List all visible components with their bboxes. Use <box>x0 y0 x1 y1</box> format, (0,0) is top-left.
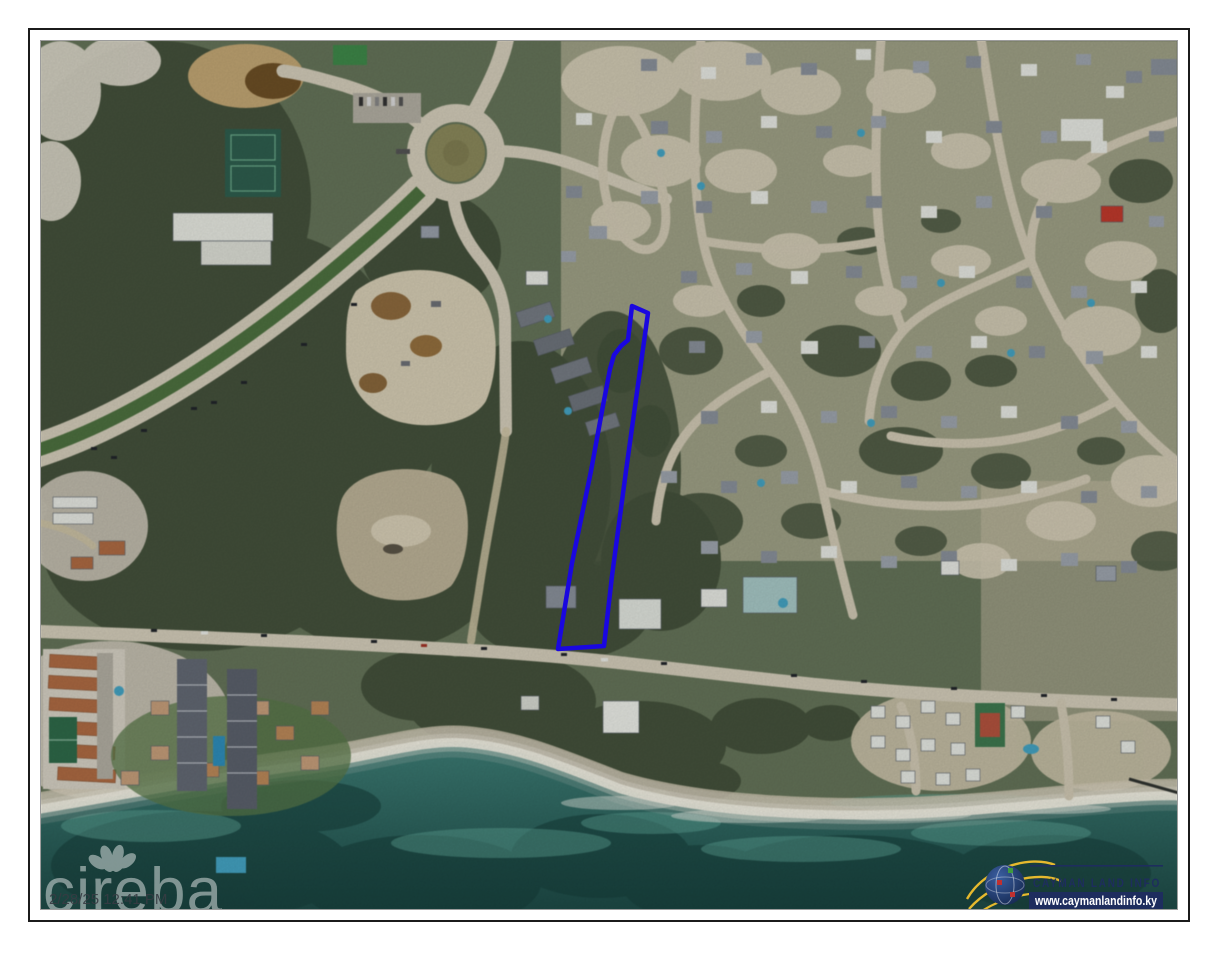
logo-rule <box>1030 865 1163 867</box>
logo-url-text: www.caymanlandinfo.ky <box>1034 894 1157 908</box>
logo-name-text: CAYMAN LAND INFO <box>1033 878 1161 890</box>
timestamp-text: 2/28/25 12:41 PM <box>49 891 167 908</box>
satellite-imagery <box>41 41 1177 909</box>
photo-grain <box>41 41 1177 909</box>
photo-outer-frame: cireba 2/28/25 12:41 PM CAYMAN LAND INFO… <box>28 28 1190 922</box>
photo-inner-frame: cireba 2/28/25 12:41 PM CAYMAN LAND INFO… <box>40 40 1178 910</box>
aerial-map: cireba 2/28/25 12:41 PM CAYMAN LAND INFO… <box>41 41 1177 909</box>
